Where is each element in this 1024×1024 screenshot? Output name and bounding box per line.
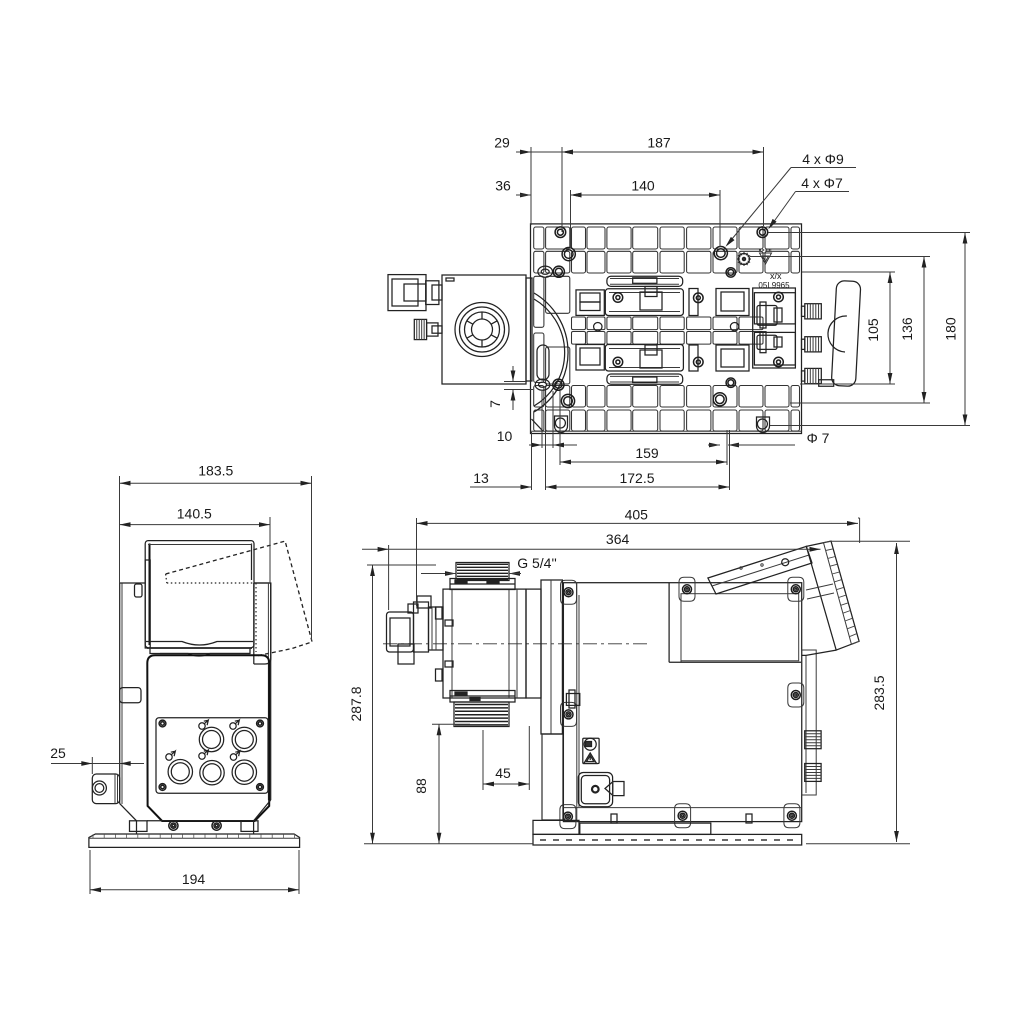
- svg-text:13: 13: [473, 470, 489, 486]
- svg-text:283.5: 283.5: [871, 675, 887, 710]
- svg-text:187: 187: [647, 135, 671, 151]
- svg-text:180: 180: [943, 317, 959, 341]
- svg-text:183.5: 183.5: [198, 463, 233, 479]
- svg-text:G 5/4'': G 5/4'': [517, 555, 557, 571]
- svg-text:4 x Φ9: 4 x Φ9: [802, 151, 844, 167]
- svg-text:4 x Φ7: 4 x Φ7: [801, 175, 843, 191]
- svg-text:159: 159: [635, 445, 659, 461]
- svg-text:405: 405: [625, 506, 649, 522]
- svg-text:136: 136: [899, 317, 915, 341]
- svg-text:29: 29: [494, 135, 510, 151]
- svg-text:88: 88: [413, 778, 429, 794]
- svg-text:x/x: x/x: [770, 271, 782, 281]
- svg-text:287.8: 287.8: [348, 686, 364, 721]
- svg-text:140.5: 140.5: [177, 506, 212, 522]
- svg-text:364: 364: [606, 531, 630, 547]
- svg-text:7: 7: [487, 400, 503, 408]
- svg-text:Φ 7: Φ 7: [807, 430, 830, 446]
- svg-text:140: 140: [631, 177, 655, 193]
- svg-text:10: 10: [497, 428, 513, 444]
- svg-text:45: 45: [495, 765, 511, 781]
- svg-text:05L9965: 05L9965: [758, 281, 790, 290]
- svg-text:25: 25: [50, 745, 66, 761]
- svg-text:36: 36: [495, 177, 511, 193]
- svg-text:172.5: 172.5: [619, 470, 654, 486]
- svg-text:105: 105: [865, 318, 881, 342]
- svg-text:194: 194: [182, 871, 206, 887]
